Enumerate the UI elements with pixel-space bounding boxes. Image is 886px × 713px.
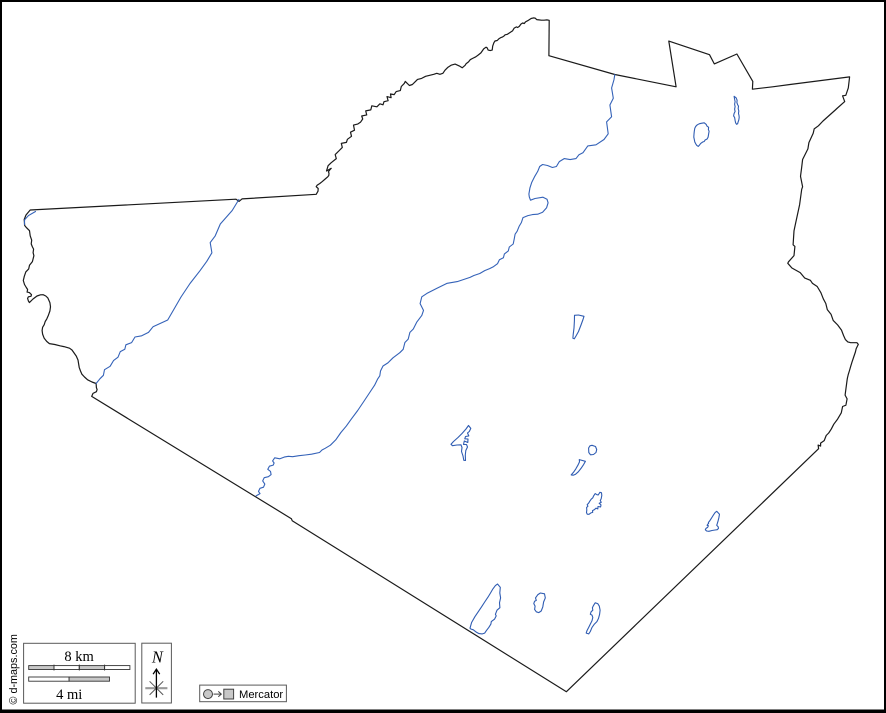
svg-text:8 km: 8 km [64,649,94,665]
svg-text:N: N [151,647,164,666]
svg-text:4 mi: 4 mi [56,687,82,703]
svg-text:Mercator: Mercator [239,689,283,701]
svg-text:© d-maps.com: © d-maps.com [8,634,20,704]
